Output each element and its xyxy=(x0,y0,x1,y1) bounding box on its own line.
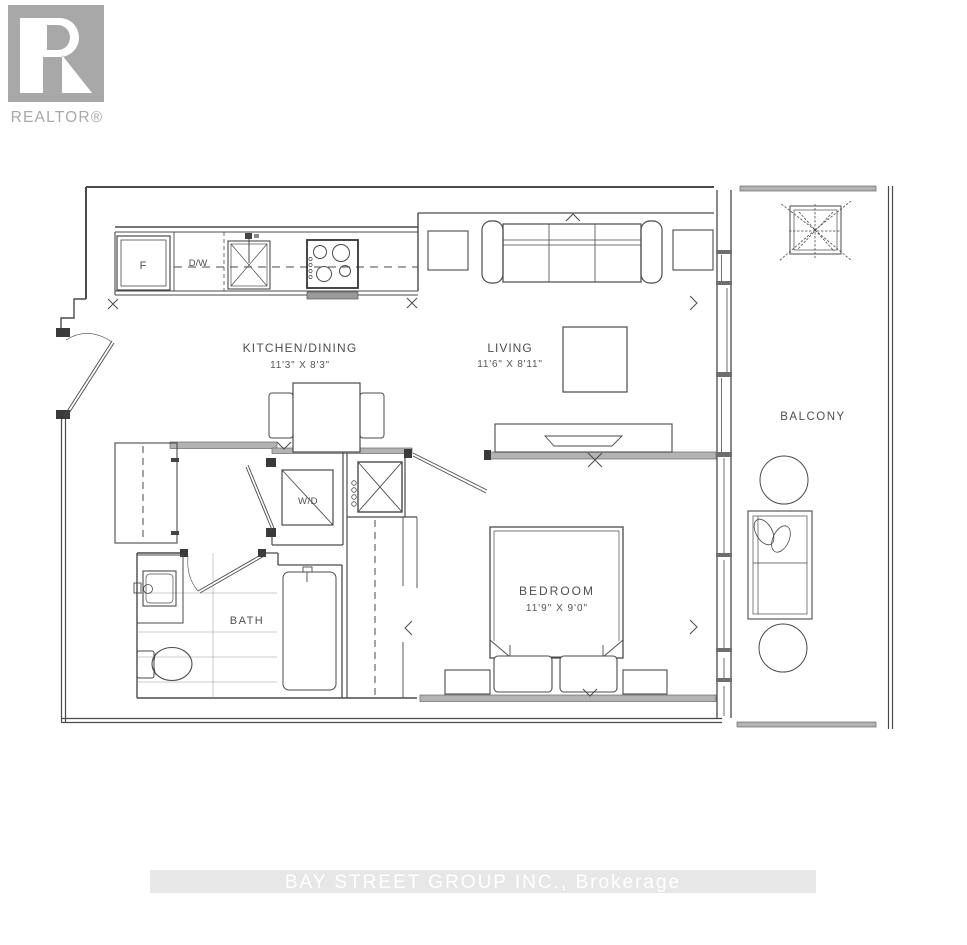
sofa xyxy=(482,221,662,283)
x-mark-icon xyxy=(407,298,417,308)
entry-closet xyxy=(115,443,179,543)
stove-front xyxy=(307,292,358,299)
balcony-label: BALCONY xyxy=(780,411,845,423)
chevron-up-icon xyxy=(566,214,580,221)
realtor-wordmark: REALTOR® xyxy=(11,109,104,126)
vanity-sink xyxy=(134,555,183,623)
left-outer-wall xyxy=(62,419,66,722)
pillow xyxy=(560,656,617,692)
window-wall xyxy=(716,190,732,718)
tv-console xyxy=(495,424,672,452)
kitchen-dining-label: KITCHEN/DINING xyxy=(243,341,358,355)
kitchen-sink xyxy=(228,233,270,289)
side-table xyxy=(673,230,713,270)
balcony-table xyxy=(759,624,807,672)
stove xyxy=(307,240,358,299)
bathtub xyxy=(283,567,336,690)
kitchen-dining-dims: 11'3" X 8'3" xyxy=(270,360,330,371)
faucet-icon xyxy=(245,233,252,239)
balcony-bench xyxy=(748,511,812,619)
toilet xyxy=(137,648,192,681)
interior-walls xyxy=(137,450,417,698)
living-bedroom-wall xyxy=(489,452,716,459)
realtor-logo: REALTOR® xyxy=(8,5,104,126)
dishwasher-label: D/W xyxy=(189,258,208,269)
outer-walls xyxy=(61,186,893,729)
fridge-label: F xyxy=(140,260,147,272)
balcony-top-wall xyxy=(740,186,876,191)
bedroom-dims: 11'9" X 9'0" xyxy=(526,603,588,614)
nightstand xyxy=(623,670,667,694)
washer-dryer-label: W/D xyxy=(298,496,318,507)
floor-plan-drawing: REALTOR® xyxy=(0,0,967,945)
dining-chair xyxy=(360,393,384,438)
pillow xyxy=(494,656,552,692)
living-label: LIVING xyxy=(487,341,532,355)
laundry-closet-door xyxy=(246,465,274,530)
nightstand xyxy=(445,670,490,694)
balcony-bottom-wall xyxy=(737,722,876,727)
coffee-table xyxy=(563,327,627,392)
bathroom-door xyxy=(188,553,266,593)
side-table xyxy=(428,231,468,270)
bath-label: BATH xyxy=(230,615,265,627)
chevron-right-icon xyxy=(690,620,697,634)
kitchen xyxy=(115,227,418,299)
mechanical-closet xyxy=(352,462,402,512)
cushion xyxy=(768,523,794,555)
bedroom-bottom-wall xyxy=(420,695,716,702)
bottom-outer-wall xyxy=(61,719,722,723)
brokerage-watermark: BAY STREET GROUP INC., Brokerage xyxy=(150,870,816,893)
dining-chair xyxy=(269,393,293,438)
dining-table xyxy=(293,383,360,452)
balcony-table xyxy=(760,456,808,504)
floor-plan-page: REALTOR® xyxy=(0,0,967,945)
x-mark-icon xyxy=(108,299,118,309)
bedroom-label: BEDROOM xyxy=(519,584,595,598)
balcony-area xyxy=(748,201,852,672)
dining-set xyxy=(269,383,384,452)
bedroom-door xyxy=(413,453,487,493)
chevron-left-icon xyxy=(405,621,412,635)
living-room xyxy=(428,221,713,452)
watermark-text: BAY STREET GROUP INC., Brokerage xyxy=(285,872,681,893)
entry-door xyxy=(64,333,114,418)
cushion xyxy=(750,516,778,548)
hall-wall xyxy=(170,442,277,449)
living-dims: 11'6" X 8'11" xyxy=(477,359,542,370)
chevron-right-icon xyxy=(690,296,697,310)
planter-plant xyxy=(779,201,852,261)
right-outer-wall xyxy=(889,186,893,729)
